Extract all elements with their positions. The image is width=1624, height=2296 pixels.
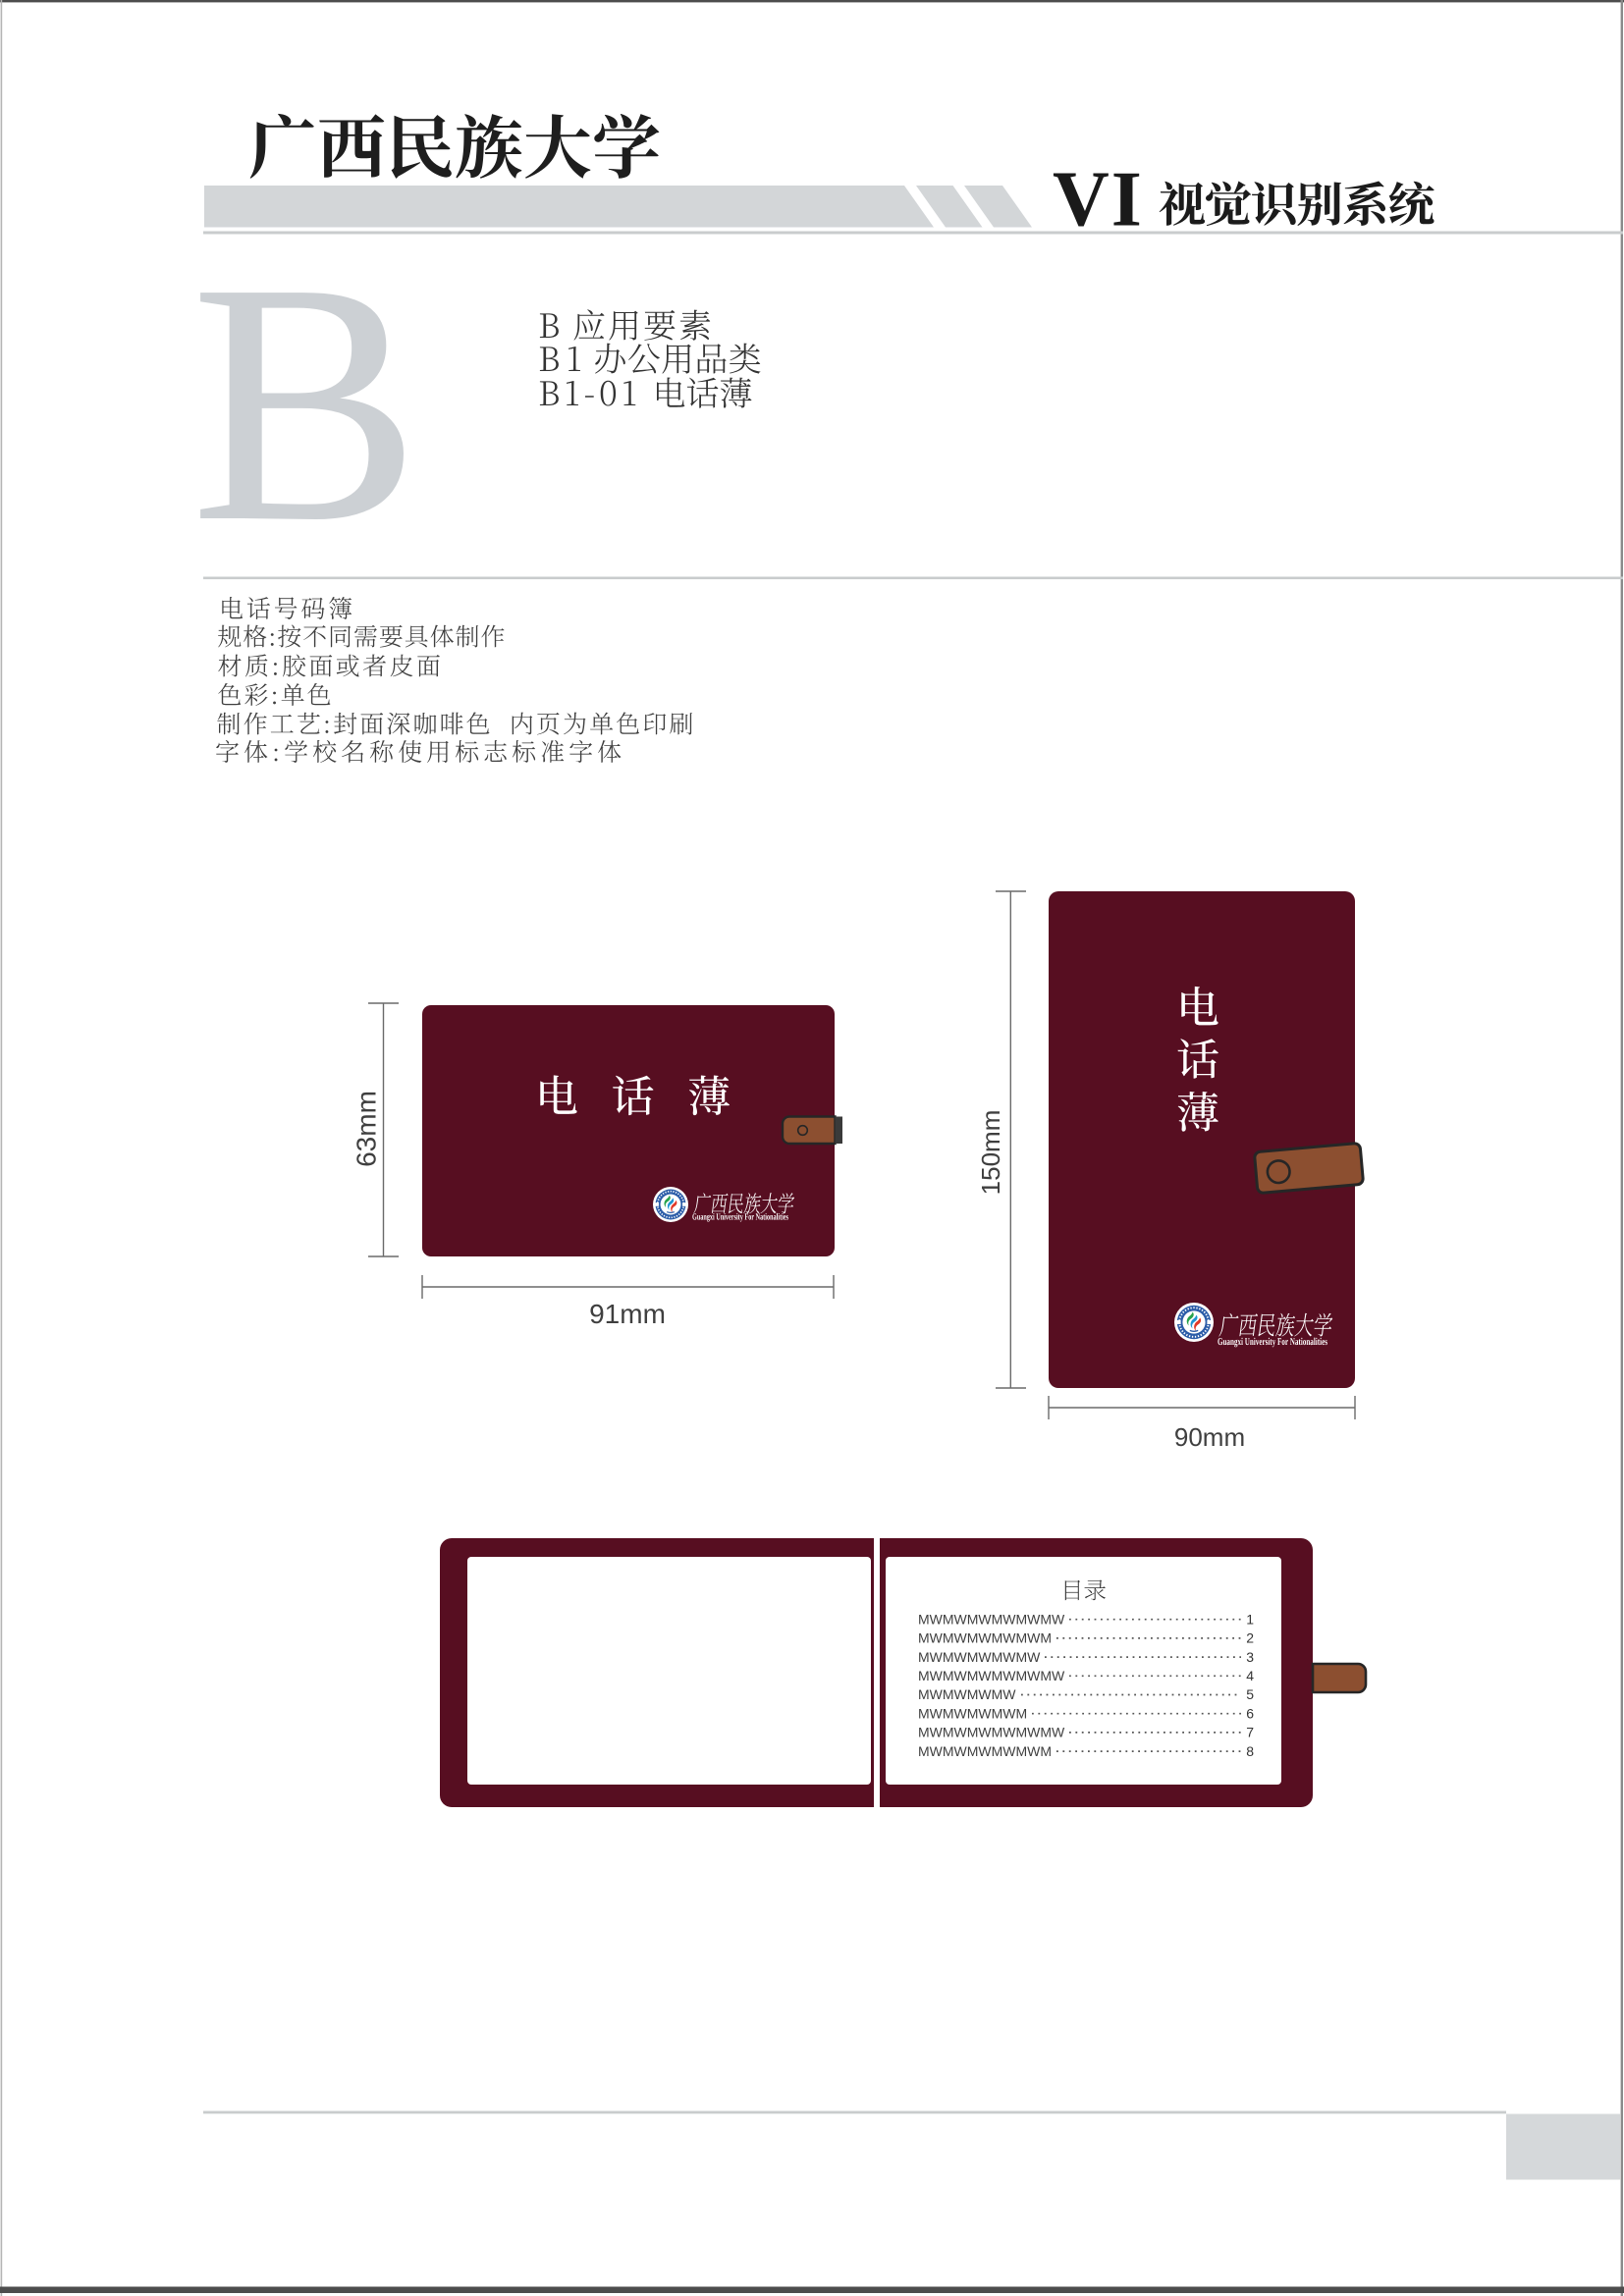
svg-text:3: 3 (1246, 1649, 1254, 1665)
svg-text:2: 2 (1246, 1630, 1254, 1646)
svg-text:63mm: 63mm (352, 1091, 382, 1167)
svg-text:91mm: 91mm (589, 1299, 666, 1329)
svg-text:B: B (190, 211, 420, 593)
svg-text:150mm: 150mm (976, 1110, 1005, 1196)
svg-text:VI: VI (1053, 157, 1144, 243)
svg-text:8: 8 (1246, 1743, 1254, 1759)
svg-text:7: 7 (1246, 1725, 1254, 1740)
svg-text:MWMWMWMW: MWMWMWMW (918, 1686, 1016, 1702)
svg-text:5: 5 (1246, 1686, 1254, 1702)
svg-text:6: 6 (1246, 1705, 1254, 1721)
svg-text:MWMWMWMWMWMW: MWMWMWMWMWMW (918, 1725, 1065, 1740)
svg-text:90mm: 90mm (1174, 1422, 1245, 1452)
svg-text:MWMWMWMWM: MWMWMWMWM (918, 1705, 1027, 1721)
svg-text:MWMWMWMWMW: MWMWMWMWMW (918, 1649, 1041, 1665)
svg-text:MWMWMWMWMWM: MWMWMWMWMWM (918, 1743, 1052, 1759)
svg-text:MWMWMWMWMWMW: MWMWMWMWMWMW (918, 1611, 1065, 1627)
svg-text:4: 4 (1246, 1668, 1254, 1683)
svg-text:1: 1 (1246, 1611, 1254, 1627)
svg-text:MWMWMWMWMWM: MWMWMWMWMWM (918, 1630, 1052, 1646)
svg-text:MWMWMWMWMWMW: MWMWMWMWMWMW (918, 1668, 1065, 1683)
